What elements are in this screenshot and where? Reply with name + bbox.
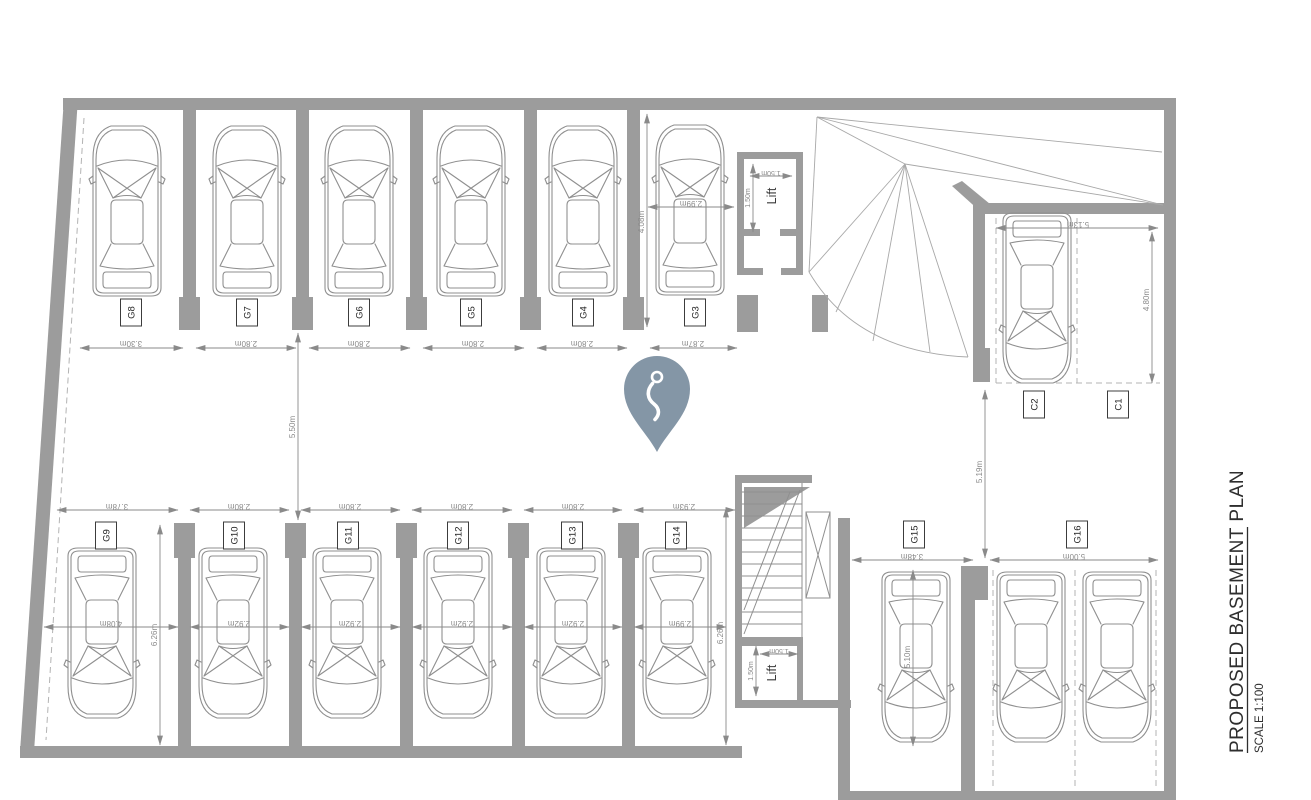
wall-segment [737,295,758,332]
top-lift-walls [737,152,828,332]
wall-segment [735,700,851,708]
dim-bottom-width-g12: 2.80m [412,502,512,511]
wall-segment [973,348,990,382]
dim-bottom-width-g11: 2.80m [301,502,400,511]
dimension-label: 2.99m [669,619,692,628]
wall-segment [796,159,803,275]
wall-segment [812,295,828,332]
wall-segment [623,297,644,330]
ramp-line [817,117,1163,205]
dimension-label: 6.26m [716,622,725,645]
wall-segment [838,518,850,800]
car-top-view-icon [545,126,621,296]
wall-segment [744,229,760,236]
wall-segment [845,791,1176,800]
stall-label-text: G6 [355,306,366,319]
car-top-view-icon [420,548,496,718]
dimension-label: 2.80m [451,502,474,511]
dimension-label: 2.80m [462,339,485,348]
ramp-line [873,164,905,341]
dimension-label: 5.00m [1063,552,1086,561]
dimension-label: 3.78m [106,502,129,511]
wall-segment [174,523,195,558]
dimension-label: 2.93m [673,502,696,511]
lift-label-top: Lift [765,187,779,204]
dim-top-width-g3: 2.87m [650,339,737,348]
dimension-label: 2.92m [339,619,362,628]
dimension-label: 5.13m [1067,220,1090,229]
wall-segment [780,229,796,236]
wall-segment [978,203,1164,214]
wall-segment [1164,98,1176,800]
dim-top-width-g6: 2.80m [309,339,410,348]
dim-bottom-width-g9: 3.78m [57,502,178,511]
stall-label-c1: C1 [1108,391,1129,418]
wall-segment [410,110,423,297]
location-pin-icon[interactable] [624,356,690,452]
wall-segment [396,523,417,558]
stall-label-g15: G15 [904,521,925,548]
car-top-view-icon [433,126,509,296]
ramp-sweep-lines [809,117,1163,357]
wall-segment [289,558,302,746]
stall-label-g8: G8 [121,299,142,326]
wall-segment [737,152,803,159]
wall-segment [524,110,537,297]
lift-label-bottom: Lift [765,664,779,681]
wall-segment [520,297,541,330]
dimension-label: 2.92m [451,619,474,628]
wall-segment [63,98,1176,110]
ramp-line [905,164,930,352]
car-top-view-icon [89,126,165,296]
top-stall-dividers [179,110,644,330]
stall-label-g9: G9 [96,522,117,549]
stall-label-text: G3 [691,306,702,319]
wall-segment [627,110,640,297]
parked-cars [64,125,1155,742]
wall-segment [508,523,529,558]
stall-label-text: G5 [467,306,478,319]
stall-label-text: G14 [672,527,683,545]
wall-segment [961,566,975,800]
building-walls [20,98,1176,800]
dim-top-width-g5: 2.80m [423,339,524,348]
dim-c-bay-depth: 4.80m [1142,232,1152,383]
dim-lift-top-width: 1.50m [750,169,792,176]
stall-label-text: G12 [454,527,465,545]
wall-segment [178,558,191,746]
wall-segment [622,558,635,746]
stall-label-text: C1 [1114,398,1125,410]
dim-bottom-width-g14: 2.93m [634,502,735,511]
wall-segment [20,746,742,758]
dim-aisle-width: 5.50m [288,333,298,520]
dim-g15-width: 3.48m [852,552,973,561]
stall-label-g4: G4 [573,299,594,326]
dimension-label: 4.08m [637,211,646,234]
ramp-line [809,117,817,272]
dimension-label: 2.80m [228,502,251,511]
car-top-view-icon [64,548,140,718]
wall-segment [179,297,200,330]
dim-top-width-g4: 2.80m [537,339,627,348]
dimension-label: 2.80m [235,339,258,348]
car-top-view-icon [321,126,397,296]
stall-label-g12: G12 [448,522,469,549]
stall-label-g3: G3 [685,299,706,326]
c-bay-walls [952,181,1164,382]
dimension-label: 5.19m [975,461,984,484]
basement-plan-page: G8 G7 G6 G5 G4 G3 G9 G10 G11 G12 G13 G14… [0,0,1311,800]
stall-label-text: G16 [1073,526,1084,544]
car-top-view-icon [999,213,1075,383]
dim-g16-width: 5.00m [990,552,1158,561]
stall-label-text: G9 [102,529,113,542]
wall-segment [618,523,639,558]
stall-label-g5: G5 [461,299,482,326]
stall-label-c2: C2 [1024,391,1045,418]
car-top-view-icon [1079,572,1155,742]
wall-segment [781,268,803,275]
stall-label-g13: G13 [562,522,583,549]
dimension-label: 2.87m [682,339,705,348]
basement-floor-plan: G8 G7 G6 G5 G4 G3 G9 G10 G11 G12 G13 G14… [0,0,1311,800]
stall-label-text: G11 [344,527,355,544]
wall-segment [737,268,763,275]
car-top-view-icon [993,572,1069,742]
dimension-label: 2.80m [339,502,362,511]
wall-segment [735,475,742,708]
dimension-label: 1.50m [769,647,789,654]
stall-label-text: G4 [579,306,590,319]
car-top-view-icon [309,548,385,718]
ramp-line [809,164,905,272]
dimension-label: 2.92m [562,619,585,628]
ramp-line [905,164,968,357]
stall-label-text: G15 [910,526,921,544]
dimension-label: 2.80m [562,502,585,511]
dimension-label: 4.08m [100,619,123,628]
dim-lift-top-depth: 1.50m [745,164,753,232]
dimension-label: 2.80m [571,339,594,348]
ramp-line [905,164,1163,205]
stair-landing-fill [744,487,810,528]
stall-label-g7: G7 [237,299,258,326]
dim-bottom-width-g10: 2.80m [190,502,289,511]
wall-segment [512,558,525,746]
dimension-label: 1.50m [745,188,752,208]
title-block: PROPOSED BASEMENT PLAN SCALE 1:100 [1227,470,1266,753]
car-top-view-icon [639,548,715,718]
stall-label-g14: G14 [666,522,687,549]
dimension-label: 5.10m [903,646,912,669]
stall-label-text: G10 [230,527,241,545]
ramp-line [836,164,905,312]
stall-label-text: G13 [568,527,579,545]
ramp-line [817,117,1162,152]
dimension-label: 4.80m [1142,289,1151,312]
car-top-view-icon [195,548,271,718]
wall-segment [183,110,196,297]
dim-car-width-g13: 2.92m [524,619,622,628]
wall-segment [296,110,309,297]
dimension-label: 3.30m [120,339,143,348]
wall-segment [973,203,985,348]
dimension-label: 2.99m [680,199,703,208]
dim-right-aisle: 5.19m [975,390,985,558]
location-pin[interactable] [624,356,690,452]
stall-label-text: G7 [243,306,254,319]
dim-car-width-g14: 2.99m [634,619,726,628]
wall-segment [285,523,306,558]
dim-bottom-width-g13: 2.80m [524,502,622,511]
car-top-view-icon [533,548,609,718]
dimension-label: 2.92m [228,619,251,628]
wall-segment [742,637,803,646]
dim-top-width-g7: 2.80m [196,339,296,348]
ramp-line [817,117,905,164]
car-top-view-icon [878,572,954,742]
dimension-label: 2.80m [348,339,371,348]
car-top-view-icon [209,126,285,296]
wall-segment [735,475,812,483]
wall-segment [400,558,413,746]
dimension-label: 3.48m [901,552,924,561]
stall-label-text: G8 [127,306,138,319]
stall-label-g11: G11 [338,522,359,549]
dim-car-width-g10: 2.92m [190,619,289,628]
plan-scale: SCALE 1:100 [1254,683,1266,753]
dimension-label: 5.50m [288,416,297,439]
plan-title: PROPOSED BASEMENT PLAN [1227,470,1248,753]
dimension-label: 1.50m [761,169,781,176]
stair-block-walls [735,475,851,800]
stall-label-text: C2 [1030,398,1041,410]
dim-top-width-g8: 3.30m [80,339,183,348]
stall-label-g10: G10 [224,522,245,549]
wall-segment [975,566,988,600]
dim-lift-bottom-depth: 1.50m [748,646,756,696]
stall-label-g16: G16 [1067,521,1088,548]
wall-segment [406,297,427,330]
staircase [742,483,830,637]
dimension-label: 1.50m [748,661,755,681]
dim-lift-bottom-width: 1.50m [760,647,798,654]
wall-segment [737,152,744,275]
dim-g9-depth: 6.26m [150,525,160,745]
dimension-label: 6.26m [150,624,159,647]
wall-segment [292,297,313,330]
car-top-view-icon [652,125,728,295]
stall-label-g6: G6 [349,299,370,326]
dim-g14-depth: 6.26m [716,508,726,745]
wall-segment [20,98,78,752]
